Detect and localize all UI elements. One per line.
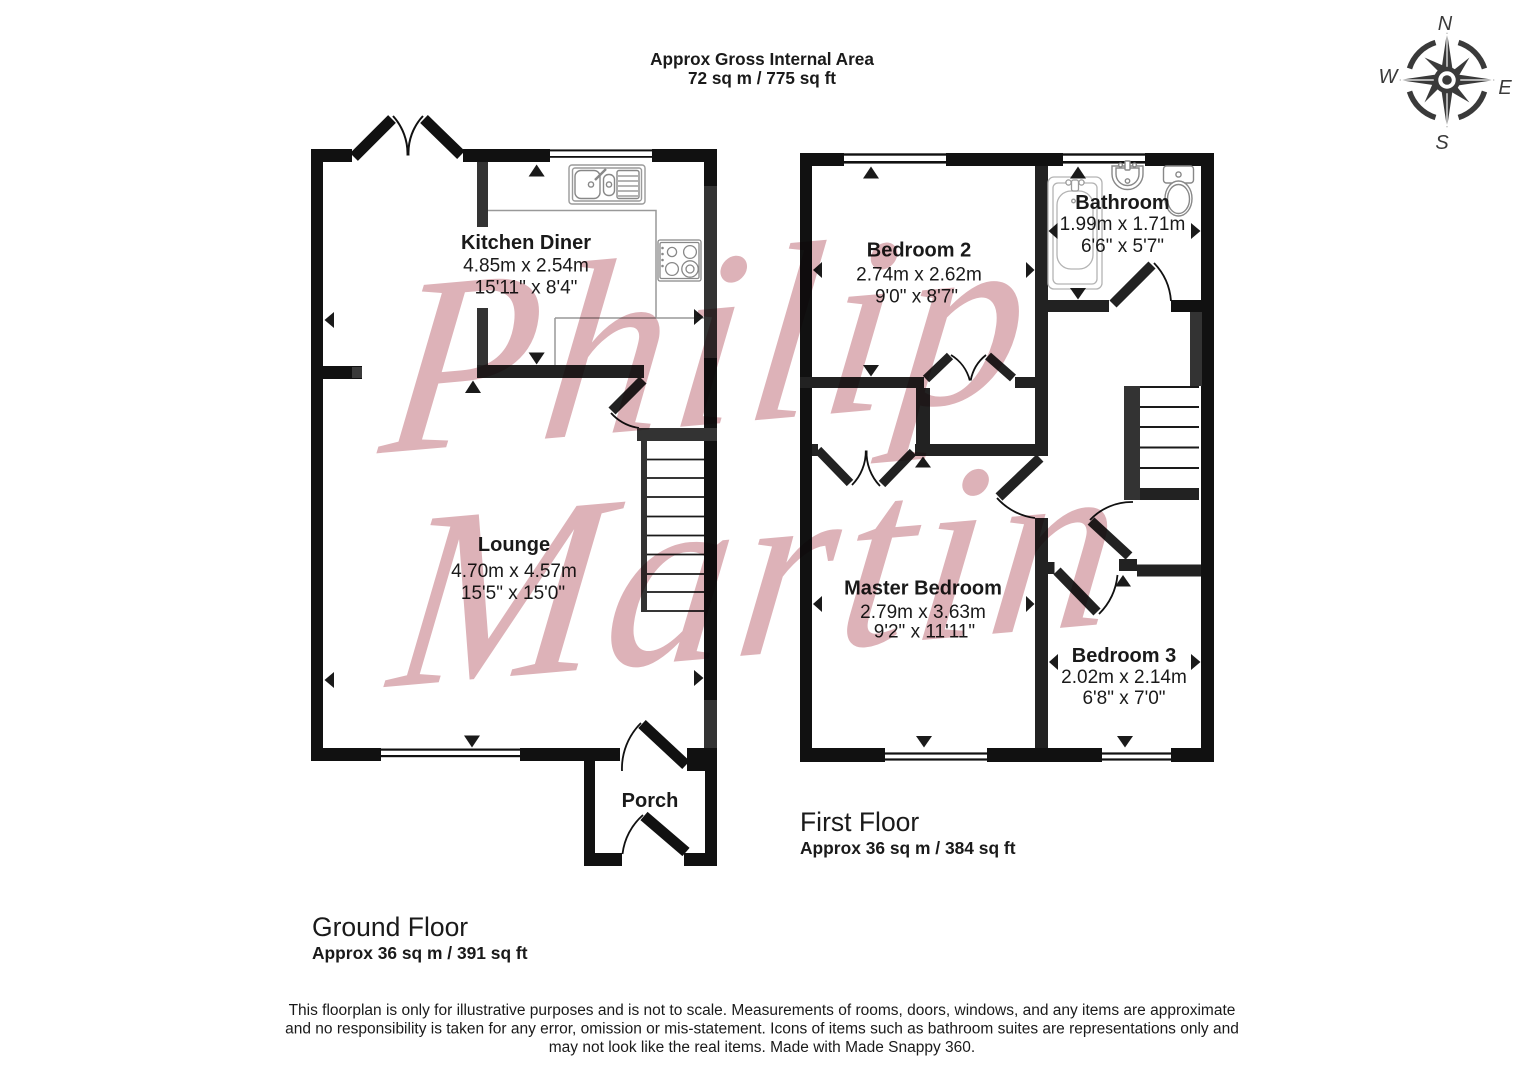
svg-text:Porch: Porch <box>622 790 679 812</box>
svg-text:N: N <box>1438 13 1453 35</box>
svg-text:and no responsibility is taken: and no responsibility is taken for any e… <box>285 1021 1239 1038</box>
svg-text:Approx Gross Internal Area: Approx Gross Internal Area <box>650 49 874 69</box>
svg-text:1.99m x 1.71m: 1.99m x 1.71m <box>1060 214 1186 235</box>
svg-text:6'8" x 7'0": 6'8" x 7'0" <box>1082 688 1165 709</box>
svg-text:This floorplan is only for ill: This floorplan is only for illustrative … <box>289 1002 1236 1019</box>
svg-text:6'6" x 5'7": 6'6" x 5'7" <box>1081 236 1164 257</box>
svg-text:Approx 36 sq m / 391 sq ft: Approx 36 sq m / 391 sq ft <box>312 943 528 963</box>
svg-text:S: S <box>1435 132 1449 154</box>
svg-text:may not look like the real ite: may not look like the real items. Made w… <box>549 1039 975 1056</box>
svg-text:W: W <box>1379 66 1400 88</box>
svg-text:First Floor: First Floor <box>800 807 919 837</box>
svg-text:Approx 36 sq m / 384 sq ft: Approx 36 sq m / 384 sq ft <box>800 838 1016 858</box>
svg-text:Ground Floor: Ground Floor <box>312 912 468 942</box>
svg-text:Bathroom: Bathroom <box>1075 192 1169 214</box>
svg-text:72 sq m / 775 sq ft: 72 sq m / 775 sq ft <box>688 68 836 88</box>
svg-text:E: E <box>1498 77 1512 99</box>
